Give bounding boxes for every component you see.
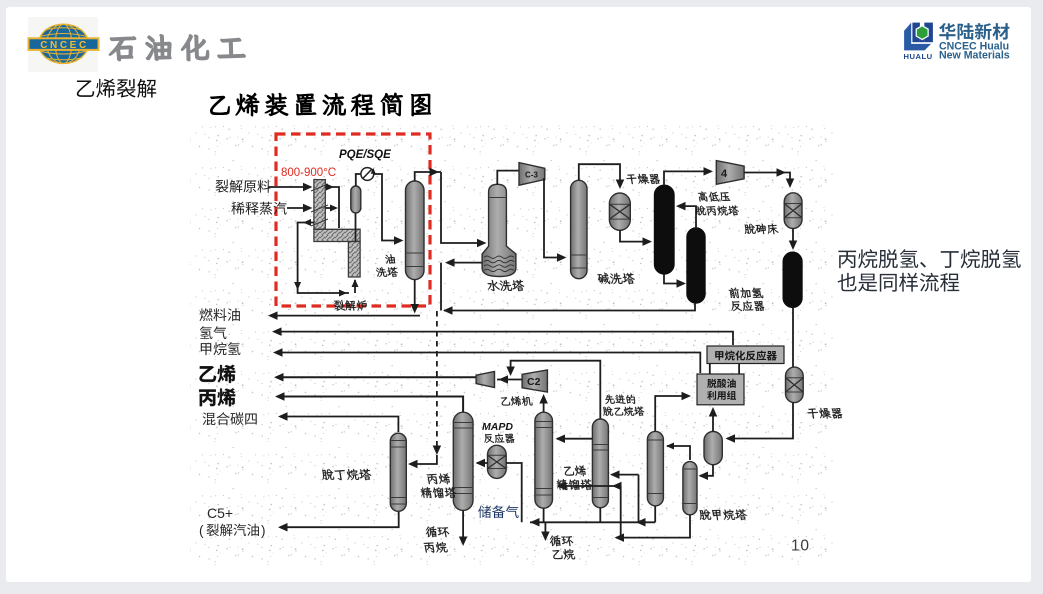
svg-text:): ) [261,523,266,538]
svg-text:4: 4 [721,168,728,180]
svg-text:MAPD: MAPD [482,421,513,433]
svg-text:PQE/SQE: PQE/SQE [339,149,391,161]
svg-text:CNCEC: CNCEC [40,40,89,51]
svg-text:10: 10 [791,538,810,555]
svg-text:(: ( [199,523,204,538]
svg-text:C5+: C5+ [207,505,233,521]
svg-text:New Materials: New Materials [939,49,1010,61]
svg-text:C2: C2 [527,376,541,388]
svg-text:C-3: C-3 [525,171,538,180]
svg-text:HUALU: HUALU [904,52,933,61]
svg-text:800-900°C: 800-900°C [281,167,336,179]
